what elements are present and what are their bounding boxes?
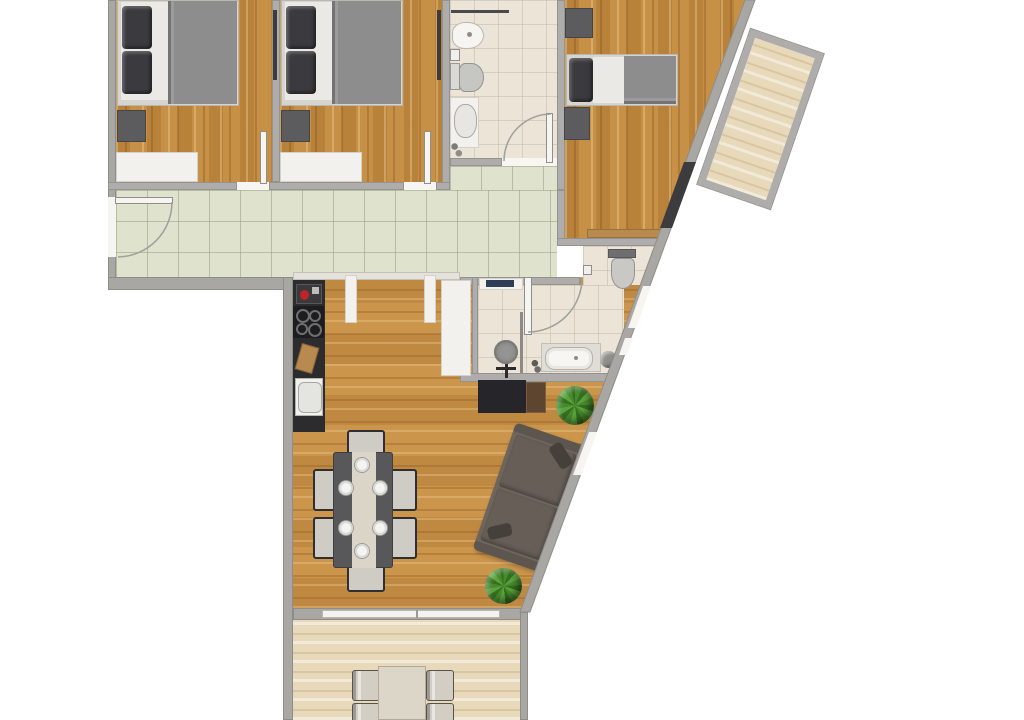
wall-bathroom-top-left [442, 0, 450, 190]
wall-bathroom-top-door-side [450, 158, 502, 166]
vanity-basin [454, 104, 477, 138]
coffee-machine [296, 284, 322, 304]
bathroom-top-door-leaf [547, 114, 552, 162]
desk [478, 380, 526, 413]
living-wardrobe [441, 280, 471, 376]
plate-3 [373, 481, 387, 495]
plate-4 [373, 521, 387, 535]
bedroom-1-door-threshold [237, 182, 269, 190]
bed-1 [117, 0, 239, 106]
terrace-chair-1 [352, 670, 380, 701]
bed-1-pillow-top [122, 6, 152, 49]
toilet-middle-bowl [611, 258, 635, 289]
shower-screen [451, 10, 509, 13]
terrace-chair-3 [426, 670, 454, 701]
wall-bedroom3-bottom [557, 238, 668, 246]
bed-3-blanket [624, 56, 676, 104]
burner-3 [296, 323, 308, 335]
burner-2 [309, 310, 321, 322]
terrace-table [378, 666, 426, 720]
bed-1-pillow-bottom [122, 51, 152, 94]
burner-1 [296, 309, 310, 323]
burner-4 [308, 323, 322, 337]
wall-bathroom-top-right [557, 0, 565, 190]
plate-1 [339, 481, 353, 495]
kitchen-sink [295, 378, 323, 416]
entrance-threshold [108, 197, 116, 257]
bathtub-drain [574, 356, 578, 360]
kitchen-sink-basin [298, 382, 322, 413]
bidet-drain [467, 32, 472, 37]
terrace-chair-2 [352, 703, 380, 720]
plate-2 [339, 521, 353, 535]
wall-bedrooms-bottom-c [436, 182, 450, 190]
sliding-door-divider [416, 610, 418, 618]
bed-2-nightstand [281, 110, 310, 142]
floor-plan [0, 0, 1024, 720]
bidet [452, 22, 484, 49]
nook-divider [520, 312, 523, 373]
wall-nook-left [472, 277, 478, 382]
terrace-chair-4 [426, 703, 454, 720]
bathroom-middle-door-leaf [525, 278, 531, 334]
bath-accessories [531, 359, 542, 373]
exterior-wall-hallway-bottom [108, 277, 290, 290]
plant-2 [485, 568, 522, 604]
bedroom-2-wall-unit [437, 10, 441, 80]
bedroom-2-door-leaf [425, 132, 430, 183]
bed-2-pillow-bottom [286, 51, 316, 94]
coffee-machine-red-part [300, 290, 309, 300]
exterior-wall-living-left [283, 277, 293, 720]
plant-1 [556, 386, 594, 425]
toilet-middle-tank [608, 249, 636, 258]
exterior-wall-terrace-right [520, 612, 528, 720]
bedroom-3-nightstand-top [565, 8, 593, 38]
cooktop [293, 306, 324, 338]
bed-2 [281, 0, 403, 106]
bedroom-2-door-threshold [404, 182, 436, 190]
bed-1-blanket [168, 1, 237, 104]
toilet-top-bowl [459, 63, 484, 92]
plate-5 [355, 458, 369, 472]
bed-3-pillow [569, 58, 593, 102]
bedroom-3-nightstand-bottom [564, 107, 590, 140]
toilet-paper-holder [451, 50, 459, 60]
toilet-paper-holder-2 [584, 266, 591, 274]
bedroom-2-dresser [280, 152, 362, 182]
entrance-door-leaf [116, 198, 172, 203]
desk-wood-section [526, 382, 546, 413]
office-chair-seat [494, 340, 518, 364]
hallway-floor [116, 190, 557, 277]
cabinet-strip-2 [424, 275, 436, 323]
bedroom-1-dresser [116, 152, 198, 182]
vanity-cabinet [450, 97, 479, 148]
wall-bedrooms-bottom-b [269, 182, 404, 190]
plate-6 [355, 544, 369, 558]
nook-monitor [486, 280, 514, 287]
bath-stool [600, 351, 617, 368]
sliding-door-window [322, 610, 500, 618]
bed-3-mattress [593, 57, 624, 103]
bathtub [545, 347, 593, 370]
bed-2-blanket [332, 1, 401, 104]
bedroom-1-door-leaf [261, 132, 266, 183]
bedroom-1-wall-unit [273, 10, 277, 80]
bed-1-nightstand [117, 110, 146, 142]
hallway-alcove-floor [450, 166, 557, 190]
bed-2-pillow-top [286, 6, 316, 49]
toiletries [451, 142, 463, 157]
coffee-machine-cup [312, 287, 319, 294]
toilet-top-tank [451, 64, 459, 89]
bed-3 [566, 54, 678, 106]
bedroom-3-sideboard [587, 229, 665, 238]
wall-bedrooms-bottom-a [108, 182, 237, 190]
cabinet-strip-1 [345, 275, 357, 323]
